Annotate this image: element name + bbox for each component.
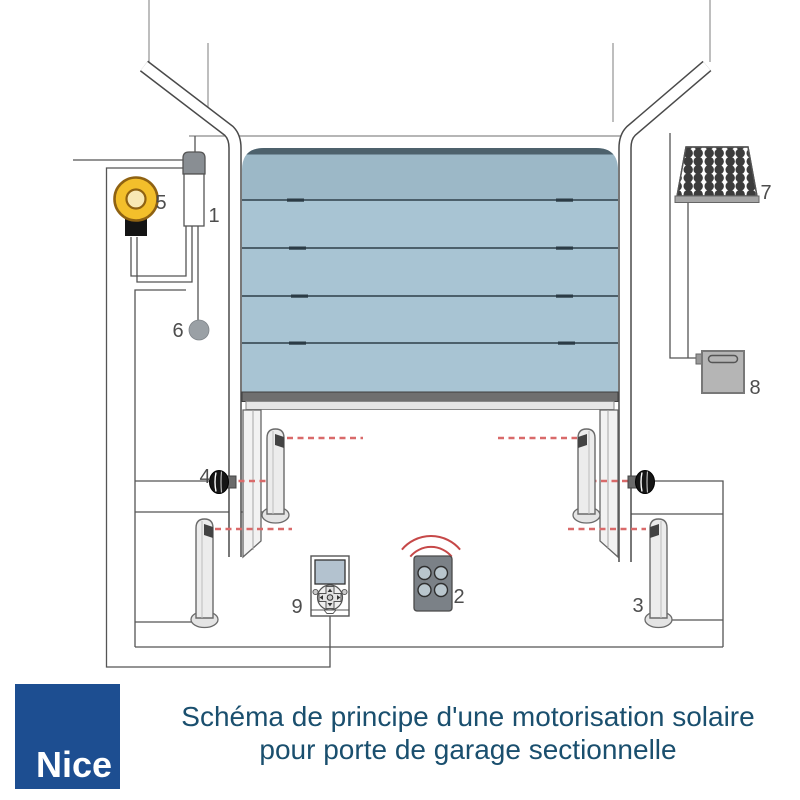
photocell-column-left-inner	[262, 429, 289, 523]
label-panel: 9	[291, 596, 302, 618]
nice-logo: Nice	[15, 684, 120, 789]
label-battery: 8	[749, 377, 760, 399]
sectional-door	[242, 148, 618, 392]
label-solar: 7	[760, 182, 771, 204]
door-top-panel	[242, 148, 618, 200]
label-motor: 1	[208, 205, 219, 227]
wire-inner-wall	[135, 290, 186, 647]
photocell-column-right-outer	[645, 519, 672, 628]
caption-line-1: Schéma de principe d'une motorisation so…	[132, 700, 800, 733]
label-photocell: 4	[199, 466, 210, 488]
photocell-column-right-inner	[573, 429, 600, 523]
battery-box	[696, 351, 744, 393]
label-remote: 2	[453, 586, 464, 608]
photocell-column-left-outer	[191, 519, 218, 628]
nice-logo-text: Nice	[36, 744, 112, 786]
page: 1 2 3 4 5 6 7 8 9 Schéma de principe d'u…	[0, 0, 800, 800]
wall-button	[189, 320, 209, 340]
solar-panel	[675, 147, 759, 203]
door-bottom-sill	[246, 402, 614, 410]
caption-line-2: pour porte de garage sectionnelle	[132, 733, 800, 766]
control-panel-screen	[315, 560, 345, 584]
flashing-light	[115, 178, 158, 237]
control-panel	[311, 556, 349, 616]
door-bottom-seal	[242, 392, 618, 402]
left-post	[243, 410, 261, 557]
solar-garage-door-diagram: 1 2 3 4 5 6 7 8 9	[0, 0, 800, 800]
solar-panel-base	[675, 196, 759, 203]
remote-control	[402, 536, 460, 611]
right-post	[600, 410, 618, 557]
label-flasher: 5	[155, 192, 166, 214]
door-posts	[243, 410, 618, 557]
label-column: 3	[632, 595, 643, 617]
wall-photocell-right	[628, 471, 655, 494]
caption: Schéma de principe d'une motorisation so…	[132, 700, 800, 766]
door-top-strip	[242, 148, 618, 155]
ceiling-hangers	[149, 0, 710, 122]
label-button: 6	[172, 320, 183, 342]
motor-unit	[183, 152, 205, 226]
